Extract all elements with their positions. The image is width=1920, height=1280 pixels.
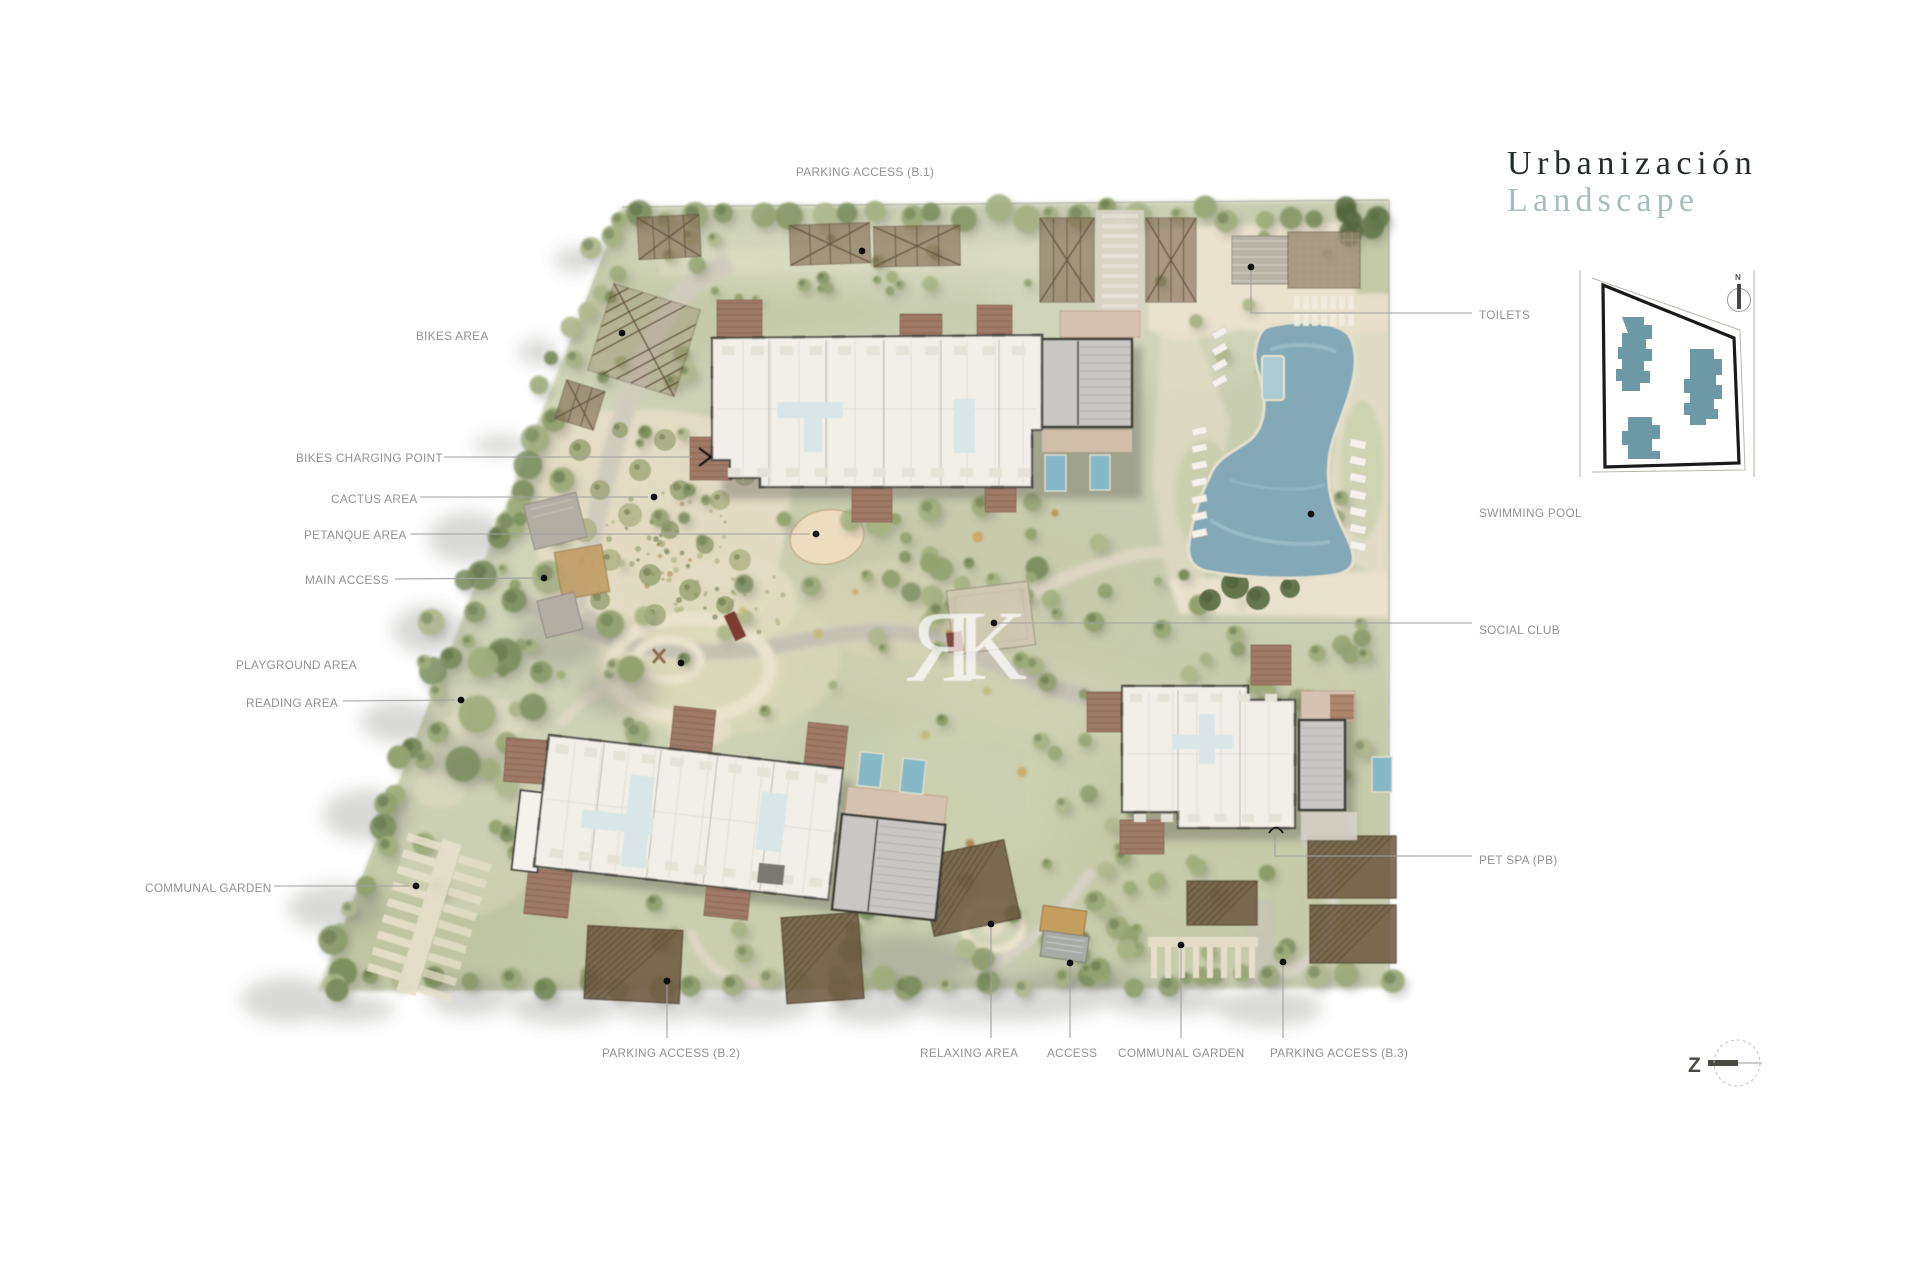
svg-text:BIKES CHARGING POINT: BIKES CHARGING POINT (296, 451, 443, 465)
svg-text:TOILETS: TOILETS (1479, 308, 1530, 322)
svg-text:RELAXING AREA: RELAXING AREA (920, 1046, 1018, 1060)
svg-text:Landscape: Landscape (1507, 182, 1699, 219)
svg-text:CACTUS AREA: CACTUS AREA (331, 492, 418, 506)
svg-text:PARKING ACCESS (B.2): PARKING ACCESS (B.2) (602, 1046, 740, 1060)
svg-text:COMMUNAL GARDEN: COMMUNAL GARDEN (145, 881, 272, 895)
svg-text:PARKING ACCESS (B.3): PARKING ACCESS (B.3) (1270, 1046, 1408, 1060)
svg-text:N: N (1735, 273, 1741, 282)
svg-text:SOCIAL CLUB: SOCIAL CLUB (1479, 623, 1560, 637)
svg-text:Z: Z (1688, 1054, 1701, 1077)
svg-text:PET SPA (PB): PET SPA (PB) (1479, 853, 1558, 867)
svg-text:BIKES AREA: BIKES AREA (416, 329, 489, 343)
svg-text:MAIN ACCESS: MAIN ACCESS (305, 573, 389, 587)
svg-text:PETANQUE AREA: PETANQUE AREA (304, 528, 407, 542)
svg-text:PLAYGROUND AREA: PLAYGROUND AREA (236, 658, 357, 672)
svg-text:PARKING ACCESS (B.1): PARKING ACCESS (B.1) (796, 165, 934, 179)
svg-text:SWIMMING POOL: SWIMMING POOL (1479, 506, 1582, 520)
svg-text:K: K (955, 590, 1027, 701)
svg-text:COMMUNAL GARDEN: COMMUNAL GARDEN (1118, 1046, 1245, 1060)
svg-text:ACCESS: ACCESS (1047, 1046, 1097, 1060)
svg-text:Urbanización: Urbanización (1507, 145, 1757, 182)
svg-text:READING AREA: READING AREA (246, 696, 338, 710)
